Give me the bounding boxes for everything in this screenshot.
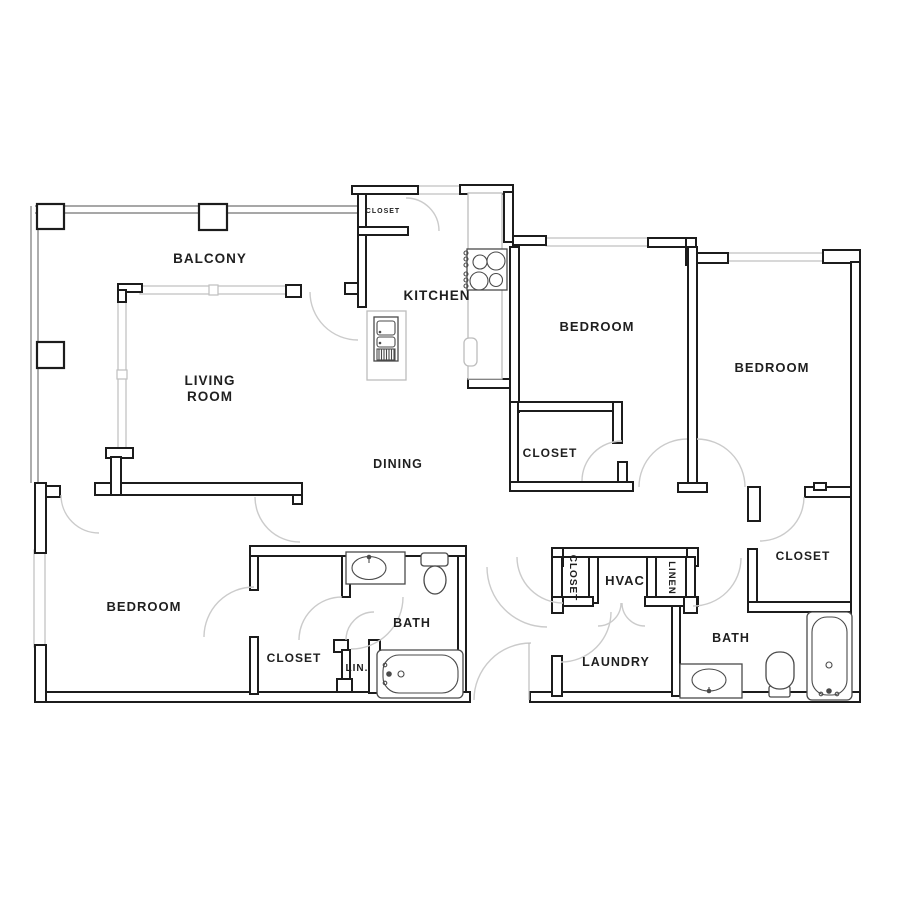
door-arc-entry-closet bbox=[406, 198, 439, 231]
room-label-living-1: LIVING bbox=[184, 373, 235, 388]
walls bbox=[35, 185, 860, 702]
room-label-closet-mid: CLOSET bbox=[523, 446, 578, 460]
floor-plan: BALCONY LIVING ROOM KITCHEN DINING CLOSE… bbox=[0, 0, 900, 900]
room-label-closet-bl: CLOSET bbox=[267, 651, 322, 665]
glass-mullion-icon bbox=[117, 370, 127, 379]
toilet-icon bbox=[766, 652, 794, 697]
kitchen-sink-small-icon bbox=[464, 338, 477, 366]
door-arc-bedroom-left-a bbox=[61, 495, 99, 533]
room-label-hvac: HVAC bbox=[605, 573, 645, 588]
room-label-living-2: ROOM bbox=[187, 389, 233, 404]
room-label-bedroom-left: BEDROOM bbox=[107, 599, 182, 614]
room-label-closet-right: CLOSET bbox=[776, 549, 831, 563]
toilet-icon bbox=[421, 553, 448, 594]
sink-icon bbox=[680, 664, 742, 698]
room-label-dining: DINING bbox=[373, 457, 423, 471]
stove-icon bbox=[464, 249, 507, 290]
glass-mullion-icon bbox=[209, 285, 218, 295]
column-icon bbox=[37, 204, 64, 229]
door-arc-closet-right bbox=[760, 497, 804, 541]
door-arc-closet-mid bbox=[582, 441, 622, 481]
room-label-linen: LINEN bbox=[666, 561, 677, 595]
floor-plan-page: BALCONY LIVING ROOM KITCHEN DINING CLOSE… bbox=[0, 0, 900, 900]
window-icon bbox=[728, 253, 823, 261]
door-arc-bedroom-top bbox=[639, 439, 687, 487]
room-label-closet-hall: CLOSET bbox=[567, 555, 578, 602]
room-label-lin: LIN. bbox=[346, 663, 369, 674]
bathtub-icon bbox=[807, 612, 852, 700]
door-arc-bedroom-right bbox=[697, 439, 745, 487]
room-label-laundry: LAUNDRY bbox=[582, 655, 650, 669]
sink-icon bbox=[346, 552, 405, 584]
door-arc-hall bbox=[487, 567, 547, 627]
window-icon bbox=[418, 186, 462, 194]
column-icon bbox=[37, 342, 64, 368]
door-arc-bath-right bbox=[693, 558, 741, 606]
door-arc-entry bbox=[474, 643, 531, 700]
window-icon bbox=[546, 238, 648, 246]
room-label-entry-closet: CLOSET bbox=[366, 208, 400, 215]
kitchen-island-icon bbox=[367, 311, 406, 380]
door-arc-balcony bbox=[310, 292, 358, 340]
door-arc-closet-bl bbox=[299, 597, 342, 640]
room-label-bedroom-top: BEDROOM bbox=[560, 319, 635, 334]
door-arc-bedroom-left-closet bbox=[204, 587, 254, 637]
door-arc-hvac-right bbox=[622, 603, 645, 626]
column-icon bbox=[199, 204, 227, 230]
room-label-kitchen: KITCHEN bbox=[404, 288, 471, 303]
room-label-bath-right: BATH bbox=[712, 631, 750, 645]
door-arc-lin bbox=[346, 612, 374, 640]
bath-right-fixtures bbox=[680, 612, 852, 700]
room-label-balcony: BALCONY bbox=[173, 251, 247, 266]
window-icon bbox=[34, 550, 45, 647]
room-label-bath-left: BATH bbox=[393, 616, 431, 630]
bathtub-icon bbox=[377, 650, 463, 698]
room-label-bedroom-right: BEDROOM bbox=[735, 360, 810, 375]
balcony-railing bbox=[31, 206, 358, 483]
